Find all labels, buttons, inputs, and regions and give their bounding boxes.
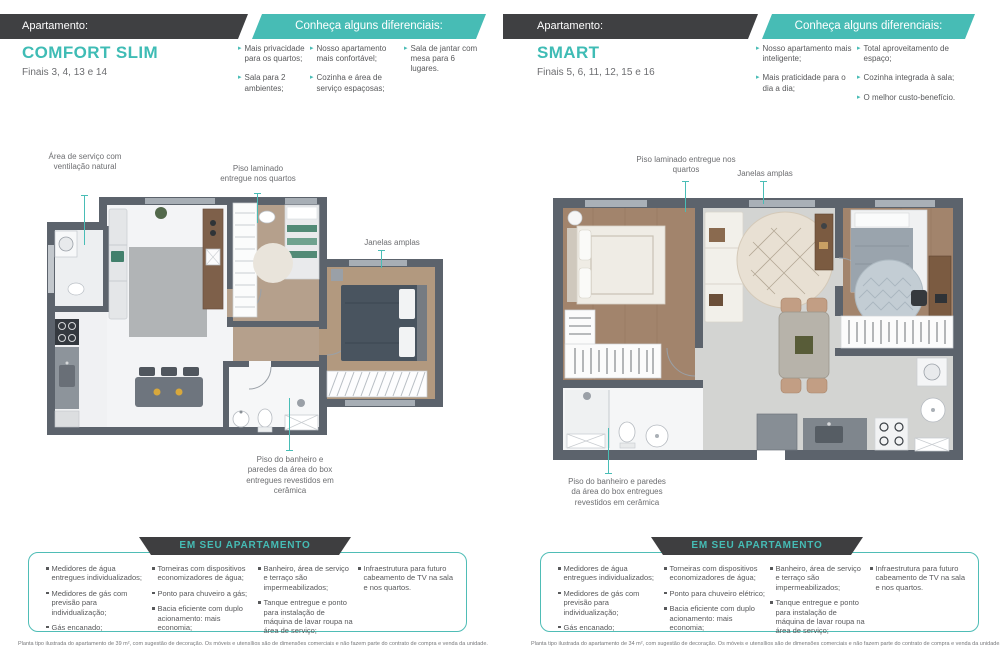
apartment-label: Apartamento: [537, 14, 603, 39]
differential-text: Nosso apartamento mais inteligente; [763, 44, 852, 64]
sink-icon [646, 425, 668, 447]
bullet-square-icon [558, 592, 561, 595]
features-column: Infraestrutura para futuro cabeamento de… [870, 564, 970, 598]
feature-text: Medidores de gás com previsão para indiv… [52, 589, 147, 617]
bullet-square-icon [558, 626, 561, 629]
feature-text: Bacia eficiente com duplo acionamento: m… [158, 604, 255, 632]
features-title: EM SEU APARTAMENTO [139, 537, 351, 555]
floor-plan-smart [553, 198, 963, 460]
wardrobe-icon [841, 316, 953, 348]
bullet-square-icon [46, 626, 49, 629]
kitchen-island-icon [757, 414, 797, 450]
annotation-windows: Janelas amplas [723, 169, 807, 179]
feature-text: Ponto para chuveiro elétrico; [670, 589, 765, 598]
leader-line [289, 398, 290, 451]
features-column: Banheiro, área de serviço e terraço são … [258, 564, 354, 642]
bullet-arrow-icon: ▸ [857, 44, 861, 64]
feature-text: Bacia eficiente com duplo acionamento: m… [670, 604, 767, 632]
differential-text: Nosso apartamento mais confortável; [317, 44, 402, 64]
bullet-square-icon [152, 567, 155, 570]
features-title: EM SEU APARTAMENTO [651, 537, 863, 555]
differential-text: Total aproveitamento de espaço; [864, 44, 979, 64]
shower-icon [565, 390, 609, 448]
bullet-arrow-icon: ▸ [756, 44, 760, 64]
window [585, 200, 935, 207]
laundry-tank-icon [68, 283, 84, 295]
features-column: Torneiras com dispositivos economizadore… [664, 564, 766, 638]
differential-text: Mais privacidade para os quartos; [245, 44, 306, 64]
apartment-label-bar-right: Apartamento: [503, 14, 758, 39]
fineprint-right: Planta tipo ilustrada do apartamento de … [531, 641, 1000, 647]
bullet-square-icon [664, 567, 667, 570]
differential-text: Cozinha integrada à sala; [864, 73, 955, 83]
annotation-ceramic: Piso do banheiro e paredes da área do bo… [242, 455, 338, 497]
bullet-arrow-icon: ▸ [238, 73, 242, 93]
apartment-finals: Finais 5, 6, 11, 12, 15 e 16 [537, 67, 655, 78]
feature-text: Tanque entregue e ponto para instalação … [776, 598, 867, 636]
bullet-square-icon [258, 567, 261, 570]
sideboard-icon [815, 214, 833, 270]
washer-icon [55, 231, 77, 257]
annotation-laminate: Piso laminado entregue nos quartos [216, 164, 300, 185]
feature-text: Medidores de água entregues individualiz… [52, 564, 147, 583]
features-column: Medidores de água entregues individualiz… [46, 564, 146, 638]
rug [253, 243, 293, 283]
bullet-square-icon [770, 567, 773, 570]
feature-text: Tanque entregue e ponto para instalação … [264, 598, 355, 636]
terrace-hatch [327, 371, 427, 397]
stove-icon [875, 418, 908, 450]
plant-icon [155, 207, 167, 219]
feature-text: Torneiras com dispositivos economizadore… [158, 564, 255, 583]
bullet-square-icon [664, 607, 667, 610]
feature-text: Torneiras com dispositivos economizadore… [670, 564, 767, 583]
feature-text: Banheiro, área de serviço e terraço são … [776, 564, 867, 592]
bullet-arrow-icon: ▸ [857, 93, 861, 103]
differentials-column: ▸Nosso apartamento mais confortável; ▸Co… [310, 44, 402, 103]
kitchen-sink-icon [803, 418, 867, 450]
feature-text: Medidores de água entregues individualiz… [564, 564, 659, 583]
differential-text: Mais praticidade para o dia a dia; [763, 73, 852, 93]
annotation-service: Área de serviço com ventilação natural [46, 152, 124, 173]
floor-plan-comfort-slim [45, 193, 445, 463]
apartment-title: SMART [537, 43, 599, 63]
leader-line [763, 181, 764, 204]
washer-icon [917, 358, 947, 386]
differentials-column: ▸Nosso apartamento mais inteligente; ▸Ma… [756, 44, 852, 103]
bullet-arrow-icon: ▸ [404, 44, 408, 75]
leader-line [685, 181, 686, 212]
features-column: Torneiras com dispositivos economizadore… [152, 564, 254, 638]
leader-line [381, 250, 382, 268]
feature-text: Banheiro, área de serviço e terraço são … [264, 564, 355, 592]
leader-line [608, 428, 609, 474]
laundry-tank-icon [921, 398, 945, 422]
leader-line [84, 195, 85, 245]
doormat-icon [915, 438, 949, 451]
differential-text: Sala para 2 ambientes; [245, 73, 306, 93]
sink-icon [233, 411, 249, 428]
features-column: Infraestrutura para futuro cabeamento de… [358, 564, 458, 598]
features-column: Banheiro, área de serviço e terraço são … [770, 564, 866, 642]
bullet-square-icon [46, 567, 49, 570]
bullet-square-icon [870, 567, 873, 570]
differentials-column: ▸Mais privacidade para os quartos; ▸Sala… [238, 44, 306, 103]
apartment-finals: Finais 3, 4, 13 e 14 [22, 67, 107, 78]
feature-text: Ponto para chuveiro a gás; [158, 589, 248, 598]
feature-text: Gás encanado; [564, 623, 615, 632]
annotation-ceramic: Piso do banheiro e paredes da área do bo… [567, 477, 667, 508]
brochure-page: Apartamento: Conheça alguns diferenciais… [0, 0, 1000, 666]
dining-table-icon [135, 367, 203, 407]
bullet-arrow-icon: ▸ [238, 44, 242, 64]
apartment-title: COMFORT SLIM [22, 43, 158, 63]
bullet-square-icon [558, 567, 561, 570]
bullet-square-icon [46, 592, 49, 595]
bullet-square-icon [358, 567, 361, 570]
bullet-square-icon [152, 592, 155, 595]
leader-line [257, 193, 258, 223]
sink-icon [259, 211, 275, 223]
toilet-icon [258, 409, 272, 432]
annotation-windows: Janelas amplas [350, 238, 434, 248]
features-column: Medidores de água entregues individualiz… [558, 564, 658, 638]
annotation-laminate: Piso laminado entregue nos quartos [636, 155, 736, 176]
sofa-icon [109, 209, 127, 319]
stove-icon [55, 319, 79, 345]
differentials-column: ▸Sala de jantar com mesa para 6 lugares. [404, 44, 482, 84]
feature-text: Infraestrutura para futuro cabeamento de… [364, 564, 459, 592]
bullet-arrow-icon: ▸ [310, 73, 314, 93]
bullet-square-icon [664, 592, 667, 595]
differential-text: Cozinha e área de serviço espaçosas; [317, 73, 402, 93]
bullet-arrow-icon: ▸ [756, 73, 760, 93]
differentials-banner-right: Conheça alguns diferenciais: [762, 14, 975, 39]
bullet-arrow-icon: ▸ [857, 73, 861, 83]
feature-text: Infraestrutura para futuro cabeamento de… [876, 564, 971, 592]
bullet-square-icon [258, 601, 261, 604]
apartment-label-bar-left: Apartamento: [0, 14, 248, 39]
apartment-label: Apartamento: [22, 14, 88, 39]
bullet-square-icon [770, 601, 773, 604]
differentials-banner-left: Conheça alguns diferenciais: [252, 14, 486, 39]
kitchen-counter-icon [203, 209, 223, 309]
feature-text: Medidores de gás com previsão para indiv… [564, 589, 659, 617]
fineprint-left: Planta tipo ilustrada do apartamento de … [18, 641, 488, 647]
toilet-icon [619, 422, 635, 448]
differential-text: O melhor custo-benefício. [864, 93, 956, 103]
bullet-square-icon [152, 607, 155, 610]
kitchen-sink-icon [55, 347, 79, 427]
rug [129, 247, 207, 337]
differential-text: Sala de jantar com mesa para 6 lugares. [411, 44, 482, 75]
bullet-arrow-icon: ▸ [310, 44, 314, 64]
differentials-column: ▸Total aproveitamento de espaço; ▸Cozinh… [857, 44, 979, 112]
feature-text: Gás encanado; [52, 623, 103, 632]
